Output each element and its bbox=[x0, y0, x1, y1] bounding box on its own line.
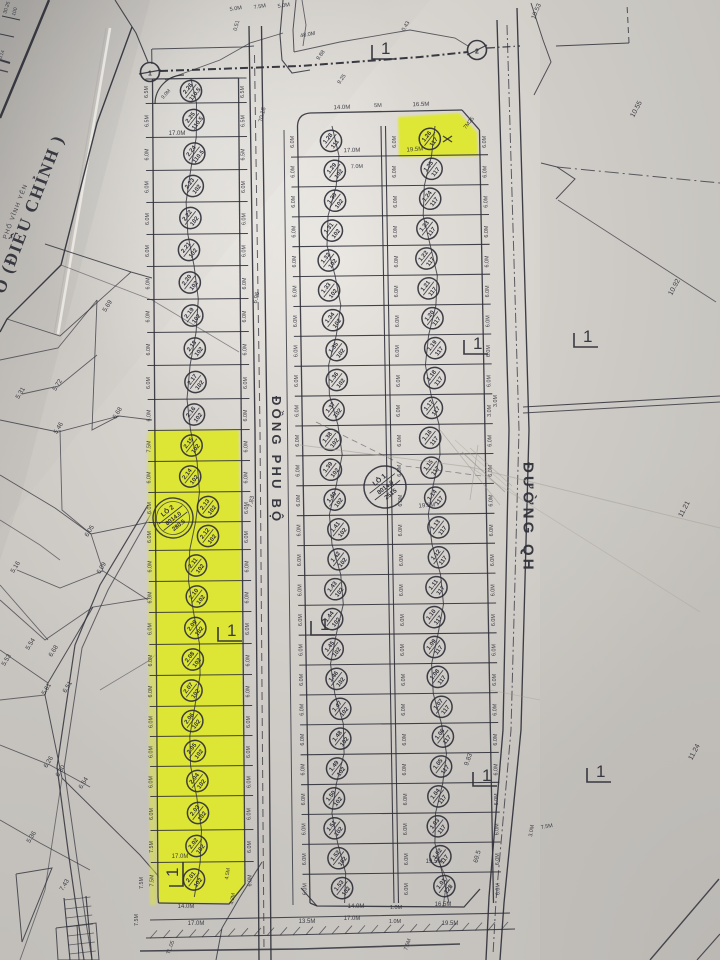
svg-text:6.0M: 6.0M bbox=[244, 471, 250, 483]
svg-text:6.5M: 6.5M bbox=[241, 148, 247, 160]
svg-text:6.0M: 6.0M bbox=[298, 643, 304, 655]
svg-text:6.0M: 6.0M bbox=[247, 840, 253, 852]
svg-text:6.0M: 6.0M bbox=[295, 404, 301, 416]
svg-text:6.5M: 6.5M bbox=[144, 114, 150, 126]
svg-text:6.0M: 6.0M bbox=[400, 643, 406, 655]
svg-text:6.5M: 6.5M bbox=[144, 85, 150, 97]
svg-text:6.0M: 6.0M bbox=[243, 343, 249, 355]
svg-text:6.0M: 6.0M bbox=[300, 733, 306, 745]
svg-text:6.0M: 6.0M bbox=[242, 277, 248, 289]
svg-text:6.0M: 6.0M bbox=[403, 823, 409, 835]
svg-text:1: 1 bbox=[596, 762, 605, 781]
svg-text:6.0M: 6.0M bbox=[395, 345, 401, 357]
svg-text:1: 1 bbox=[227, 621, 236, 640]
svg-text:6.0M: 6.0M bbox=[491, 614, 497, 626]
svg-text:6.0M: 6.0M bbox=[299, 703, 305, 715]
svg-text:6.0M: 6.0M bbox=[493, 733, 499, 745]
svg-text:6.0M: 6.0M bbox=[294, 345, 300, 357]
svg-text:6.0M: 6.0M bbox=[146, 376, 152, 388]
svg-text:6.0M: 6.0M bbox=[147, 471, 153, 483]
svg-text:1: 1 bbox=[583, 327, 592, 346]
svg-text:6.0M: 6.0M bbox=[293, 285, 299, 297]
svg-text:6.0M: 6.0M bbox=[299, 673, 305, 685]
svg-text:6.0M: 6.0M bbox=[244, 530, 250, 542]
svg-text:6.0M: 6.0M bbox=[296, 494, 302, 506]
svg-text:6.0M: 6.0M bbox=[398, 524, 404, 536]
svg-text:19.5M: 19.5M bbox=[442, 921, 459, 927]
svg-text:6.0M: 6.0M bbox=[396, 404, 402, 416]
svg-text:6.0M: 6.0M bbox=[483, 195, 489, 207]
svg-text:6.0M: 6.0M bbox=[290, 135, 296, 147]
svg-text:6.0M: 6.0M bbox=[148, 685, 154, 697]
svg-text:6.0M: 6.0M bbox=[485, 285, 491, 297]
svg-text:6.0M: 6.0M bbox=[394, 255, 400, 267]
svg-text:6.0M: 6.0M bbox=[393, 195, 399, 207]
svg-text:6.0M: 6.0M bbox=[242, 310, 248, 322]
svg-text:1: 1 bbox=[163, 868, 182, 877]
svg-text:6.0M: 6.0M bbox=[145, 180, 151, 192]
svg-text:7.5M: 7.5M bbox=[134, 913, 140, 925]
svg-text:6.5M: 6.5M bbox=[240, 114, 246, 126]
svg-text:6.0M: 6.0M bbox=[243, 440, 249, 452]
svg-text:6.0M: 6.0M bbox=[393, 225, 399, 237]
svg-text:7.5M: 7.5M bbox=[147, 440, 153, 452]
svg-text:6.0M: 6.0M bbox=[245, 591, 251, 603]
svg-text:6.0M: 6.0M bbox=[483, 165, 489, 177]
svg-text:17.0M: 17.0M bbox=[188, 921, 205, 927]
svg-text:6.0M: 6.0M bbox=[243, 376, 249, 388]
svg-text:6.0M: 6.0M bbox=[241, 212, 247, 224]
svg-text:ĐỒNG PHU BỘ: ĐỒNG PHU BỘ bbox=[269, 396, 284, 524]
svg-text:13.5M: 13.5M bbox=[299, 919, 316, 925]
svg-text:6.0M: 6.0M bbox=[145, 212, 151, 224]
svg-text:6.0M: 6.0M bbox=[484, 255, 490, 267]
svg-text:6.0M: 6.0M bbox=[298, 614, 304, 626]
svg-text:6.0M: 6.0M bbox=[145, 277, 151, 289]
svg-text:6.0M: 6.0M bbox=[302, 853, 308, 865]
svg-text:6.0M: 6.0M bbox=[301, 823, 307, 835]
svg-text:6.0M: 6.0M bbox=[294, 374, 300, 386]
svg-text:6.0M: 6.0M bbox=[292, 225, 298, 237]
svg-text:6.0M: 6.0M bbox=[148, 622, 154, 634]
svg-text:6.0M: 6.0M bbox=[147, 530, 153, 542]
svg-text:6.0M: 6.0M bbox=[401, 673, 407, 685]
svg-text:6.0M: 6.0M bbox=[291, 195, 297, 207]
svg-text:1: 1 bbox=[482, 766, 491, 785]
svg-text:1.0M: 1.0M bbox=[389, 919, 402, 925]
svg-text:6.0M: 6.0M bbox=[396, 374, 402, 386]
svg-text:6.0M: 6.0M bbox=[395, 315, 401, 327]
svg-text:6.0M: 6.0M bbox=[149, 807, 155, 819]
svg-text:19.5M: 19.5M bbox=[418, 502, 435, 509]
svg-text:17.0M: 17.0M bbox=[344, 148, 361, 155]
svg-text:7.0M: 7.0M bbox=[351, 164, 364, 170]
svg-text:6.0M: 6.0M bbox=[402, 733, 408, 745]
svg-text:7.5M: 7.5M bbox=[149, 874, 155, 886]
svg-text:17.0M: 17.0M bbox=[344, 916, 361, 922]
svg-text:6.0M: 6.0M bbox=[302, 883, 308, 895]
svg-text:6.0M: 6.0M bbox=[400, 614, 406, 626]
svg-text:6.0M: 6.0M bbox=[291, 165, 297, 177]
svg-text:1: 1 bbox=[148, 71, 152, 78]
svg-text:6.0M: 6.0M bbox=[243, 409, 249, 421]
svg-text:6.0M: 6.0M bbox=[148, 715, 154, 727]
svg-text:6.0M: 6.0M bbox=[246, 745, 252, 757]
svg-text:6.0M: 6.0M bbox=[242, 244, 248, 256]
svg-text:6.0M: 6.0M bbox=[394, 285, 400, 297]
svg-text:6.0M: 6.0M bbox=[145, 244, 151, 256]
svg-text:1: 1 bbox=[381, 39, 390, 58]
svg-text:6.0M: 6.0M bbox=[485, 315, 491, 327]
svg-text:7.5M: 7.5M bbox=[139, 876, 145, 888]
svg-text:6.0M: 6.0M bbox=[399, 554, 405, 566]
svg-text:6.0M: 6.0M bbox=[147, 560, 153, 572]
svg-text:6.0M: 6.0M bbox=[486, 345, 492, 357]
svg-text:19.5M: 19.5M bbox=[406, 146, 423, 153]
svg-text:6.0M: 6.0M bbox=[484, 225, 490, 237]
svg-text:6.0M: 6.0M bbox=[392, 135, 398, 147]
svg-text:14.0M: 14.0M bbox=[348, 904, 365, 910]
svg-text:6.0M: 6.0M bbox=[404, 883, 410, 895]
svg-text:6.0M: 6.0M bbox=[246, 715, 252, 727]
svg-text:6.0M: 6.0M bbox=[300, 763, 306, 775]
svg-text:6.0M: 6.0M bbox=[397, 434, 403, 446]
svg-text:6.0M: 6.0M bbox=[246, 775, 252, 787]
svg-text:6.0M: 6.0M bbox=[148, 591, 154, 603]
svg-text:14.0M: 14.0M bbox=[178, 904, 195, 910]
svg-text:6.0M: 6.0M bbox=[296, 464, 302, 476]
svg-text:1: 1 bbox=[473, 334, 482, 353]
svg-text:6.0M: 6.0M bbox=[146, 310, 152, 322]
svg-text:6.5M: 6.5M bbox=[240, 85, 246, 97]
svg-text:6.0M: 6.0M bbox=[494, 763, 500, 775]
svg-text:1.0M: 1.0M bbox=[390, 905, 403, 911]
svg-text:6.0M: 6.0M bbox=[146, 409, 152, 421]
svg-text:3.0M: 3.0M bbox=[493, 394, 499, 406]
svg-text:6.0M: 6.0M bbox=[145, 148, 151, 160]
svg-text:6.0M: 6.0M bbox=[298, 584, 304, 596]
svg-text:6.0M: 6.0M bbox=[490, 584, 496, 596]
svg-text:6.0M: 6.0M bbox=[247, 807, 253, 819]
svg-text:6.0M: 6.0M bbox=[482, 135, 488, 147]
svg-text:1: 1 bbox=[320, 615, 329, 634]
svg-text:6.0M: 6.0M bbox=[492, 673, 498, 685]
svg-text:6.0M: 6.0M bbox=[401, 703, 407, 715]
svg-text:6.0M: 6.0M bbox=[392, 165, 398, 177]
svg-text:6.0M: 6.0M bbox=[147, 501, 153, 513]
svg-text:6.0M: 6.0M bbox=[148, 654, 154, 666]
svg-text:6.0M: 6.0M bbox=[402, 763, 408, 775]
svg-text:6.0M: 6.0M bbox=[489, 524, 495, 536]
svg-text:6.0M: 6.0M bbox=[403, 793, 409, 805]
svg-text:17.0M: 17.0M bbox=[169, 131, 186, 137]
svg-text:ĐƯỜNG QH: ĐƯỜNG QH bbox=[520, 462, 538, 573]
svg-text:6.0M: 6.0M bbox=[490, 554, 496, 566]
svg-text:6.0M: 6.0M bbox=[487, 374, 493, 386]
svg-text:6.0M: 6.0M bbox=[491, 643, 497, 655]
svg-text:14.0M: 14.0M bbox=[334, 105, 351, 112]
svg-text:6.0M: 6.0M bbox=[301, 793, 307, 805]
svg-text:6.0M: 6.0M bbox=[245, 622, 251, 634]
svg-text:6.0M: 6.0M bbox=[297, 554, 303, 566]
svg-text:6.0M: 6.0M bbox=[292, 255, 298, 267]
svg-text:16.5M: 16.5M bbox=[413, 102, 430, 109]
svg-text:5M: 5M bbox=[374, 103, 382, 109]
svg-text:6.0M: 6.0M bbox=[493, 703, 499, 715]
svg-text:6.0M: 6.0M bbox=[404, 853, 410, 865]
svg-text:6.0M: 6.0M bbox=[149, 775, 155, 787]
svg-text:2: 2 bbox=[475, 49, 479, 56]
svg-text:6.0M: 6.0M bbox=[246, 685, 252, 697]
svg-text:6.0M: 6.0M bbox=[293, 315, 299, 327]
svg-text:6.0M: 6.0M bbox=[241, 180, 247, 192]
svg-text:17.0M: 17.0M bbox=[172, 854, 189, 860]
svg-text:6.0M: 6.0M bbox=[489, 494, 495, 506]
svg-text:6.0M: 6.0M bbox=[488, 434, 494, 446]
svg-text:6.0M: 6.0M bbox=[245, 560, 251, 572]
svg-text:6.0M: 6.0M bbox=[146, 343, 152, 355]
svg-text:6.0M: 6.0M bbox=[297, 524, 303, 536]
svg-text:6.0M: 6.0M bbox=[245, 654, 251, 666]
svg-text:7.5M: 7.5M bbox=[149, 840, 155, 852]
svg-text:6.0M: 6.0M bbox=[149, 745, 155, 757]
svg-text:6.0M: 6.0M bbox=[399, 584, 405, 596]
